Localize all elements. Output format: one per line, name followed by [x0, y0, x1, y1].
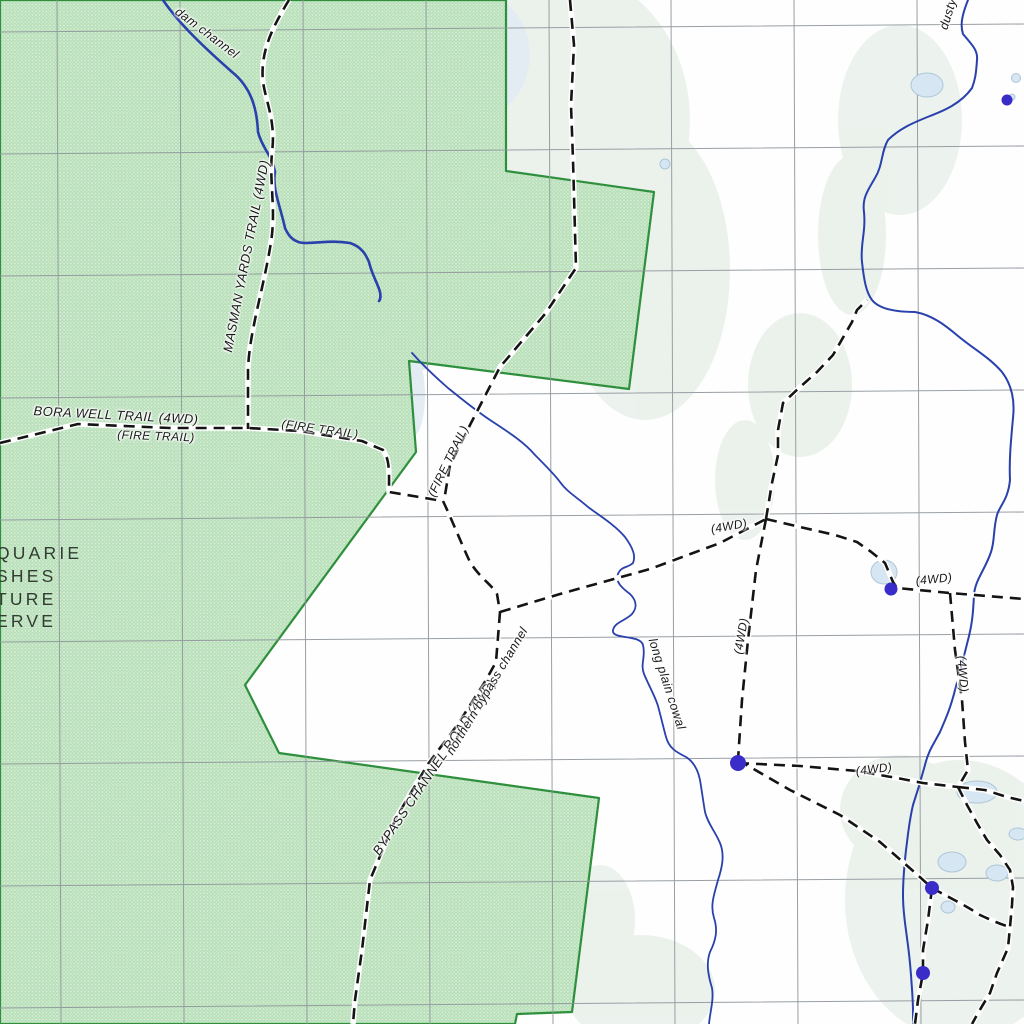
water-point-dot: [885, 583, 898, 596]
water-point-dot: [1002, 95, 1013, 106]
map-layers: [0, 0, 1024, 1024]
map-canvas[interactable]: dam channel MASMAN YARDS TRAIL (4WD) BOR…: [0, 0, 1024, 1024]
reserve-name-line-4: ERVE: [0, 610, 56, 632]
reserve-name-line-1: QUARIE: [0, 542, 82, 564]
label-fire-trail-1: (FIRE TRAIL): [117, 428, 195, 445]
reserve-name-line-3: TURE: [0, 588, 56, 610]
water-point-dot: [730, 755, 746, 771]
reserve-name-line-2: SHES: [0, 565, 56, 587]
label-4wd-d: (4WD): [955, 655, 972, 693]
water-point-dot: [916, 966, 930, 980]
water-point-dot: [925, 881, 939, 895]
